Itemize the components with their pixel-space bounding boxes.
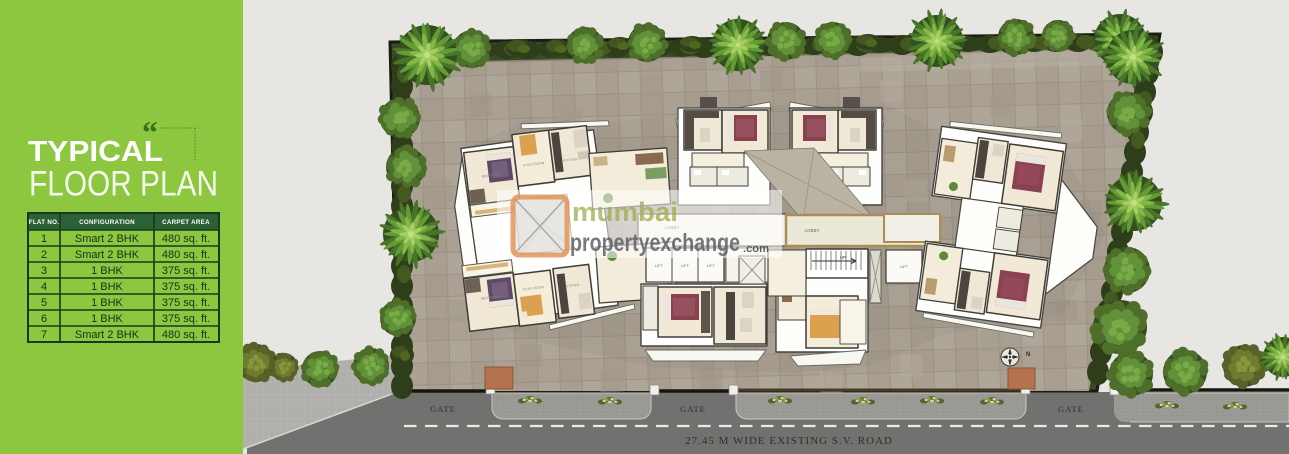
svg-text:2: 2 bbox=[41, 249, 47, 261]
svg-text:GATE: GATE bbox=[1058, 404, 1084, 414]
svg-text:480 sq. ft.: 480 sq. ft. bbox=[162, 233, 210, 245]
svg-text:375 sq. ft.: 375 sq. ft. bbox=[162, 313, 210, 325]
svg-text:CONFIGURATION: CONFIGURATION bbox=[79, 219, 135, 226]
svg-text:GATE: GATE bbox=[430, 404, 456, 414]
svg-text:GATE: GATE bbox=[680, 404, 706, 414]
svg-text:1 BHK: 1 BHK bbox=[91, 313, 123, 325]
svg-text:6: 6 bbox=[41, 313, 47, 325]
svg-text:FLOOR PLAN: FLOOR PLAN bbox=[29, 165, 218, 204]
svg-text:LIFT: LIFT bbox=[707, 264, 715, 268]
svg-text:LIFT: LIFT bbox=[681, 264, 689, 268]
svg-text:LIFT: LIFT bbox=[900, 265, 908, 269]
svg-text:UP: UP bbox=[840, 255, 846, 260]
svg-text:1: 1 bbox=[41, 233, 47, 245]
svg-text:FLAT NO.: FLAT NO. bbox=[29, 219, 59, 226]
svg-text:27.45 M WIDE EXISTING S.V. RO: 27.45 M WIDE EXISTING S.V. ROAD bbox=[685, 435, 893, 447]
svg-text:propertyexchange: propertyexchange bbox=[570, 229, 740, 257]
svg-text:4: 4 bbox=[41, 281, 47, 293]
svg-text:Smart 2 BHK: Smart 2 BHK bbox=[75, 233, 140, 245]
svg-text:7: 7 bbox=[41, 329, 47, 341]
svg-text:.com: .com bbox=[743, 243, 769, 255]
svg-text:N: N bbox=[1026, 352, 1030, 358]
svg-text:mumbai: mumbai bbox=[572, 197, 678, 227]
svg-text:3: 3 bbox=[41, 265, 47, 277]
svg-text:5: 5 bbox=[41, 297, 47, 309]
svg-text:1 BHK: 1 BHK bbox=[91, 297, 123, 309]
svg-text:1 BHK: 1 BHK bbox=[91, 265, 123, 277]
svg-text:LIFT: LIFT bbox=[655, 264, 663, 268]
svg-text:Smart 2 BHK: Smart 2 BHK bbox=[75, 329, 140, 341]
svg-text:375 sq. ft.: 375 sq. ft. bbox=[162, 297, 210, 309]
svg-text:LOBBY: LOBBY bbox=[804, 228, 819, 233]
svg-text:480 sq. ft.: 480 sq. ft. bbox=[162, 329, 210, 341]
svg-text:TYPICAL: TYPICAL bbox=[28, 136, 163, 168]
svg-text:375 sq. ft.: 375 sq. ft. bbox=[162, 265, 210, 277]
svg-text:375 sq. ft.: 375 sq. ft. bbox=[162, 281, 210, 293]
svg-text:1 BHK: 1 BHK bbox=[91, 281, 123, 293]
svg-text:CARPET AREA: CARPET AREA bbox=[162, 219, 210, 226]
svg-text:480 sq. ft.: 480 sq. ft. bbox=[162, 249, 210, 261]
svg-text:Smart 2 BHK: Smart 2 BHK bbox=[75, 249, 140, 261]
